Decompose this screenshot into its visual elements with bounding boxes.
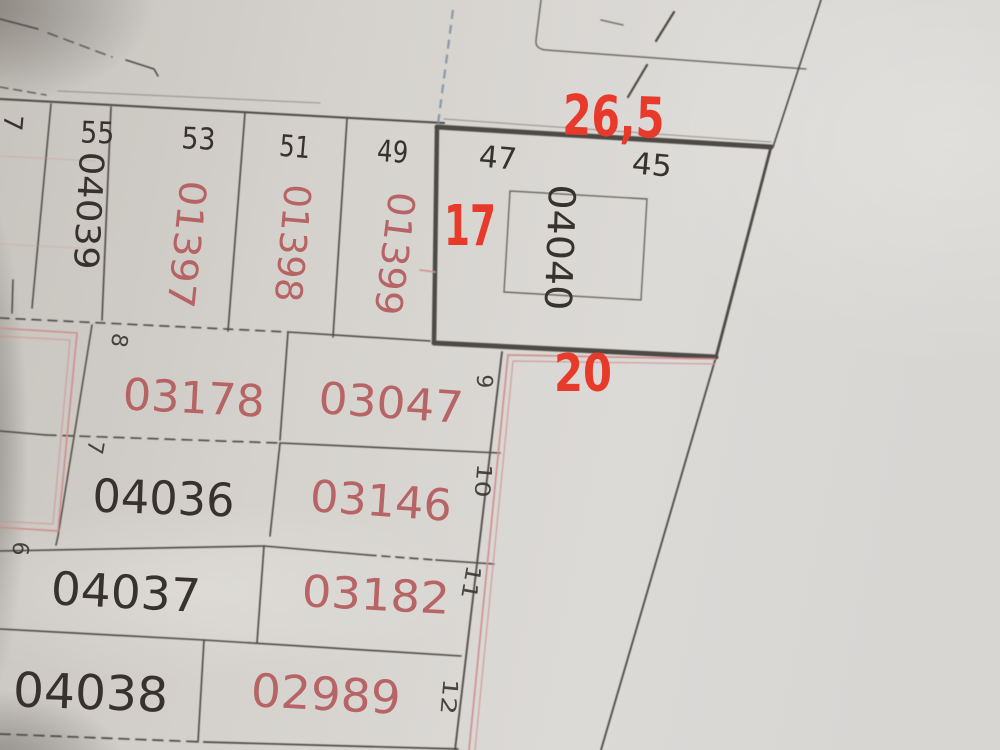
measurement-bottom-20: 20	[554, 344, 612, 404]
parcel-number-04038: 04038	[12, 662, 169, 723]
parcel-number-03047: 03047	[317, 373, 465, 434]
parcel-number-04040: 04040	[536, 184, 583, 311]
parcel-number-03182: 03182	[301, 566, 451, 625]
map-canvas: 7 55 53 51 49 47 45 04039 01397 01398 01…	[0, 0, 1000, 750]
lot-number-9: 9	[471, 374, 496, 389]
parcel-number-04037: 04037	[50, 561, 203, 623]
house-number-55: 55	[80, 115, 115, 151]
parcel-04040-left-edge	[434, 127, 437, 343]
house-number-47: 47	[477, 139, 518, 177]
parcel-number-04039: 04039	[65, 151, 111, 271]
parcel-number-03178: 03178	[122, 369, 266, 427]
parcel-number-03146: 03146	[308, 471, 453, 532]
house-number-49: 49	[376, 134, 409, 171]
house-number-51: 51	[278, 129, 312, 167]
measurement-top-26-5: 26,5	[562, 83, 666, 152]
parcel-number-04036: 04036	[92, 469, 236, 528]
house-number-57: 7	[0, 113, 28, 132]
house-number-45: 45	[630, 146, 673, 184]
left-stub-vertical	[12, 280, 13, 313]
house-number-53: 53	[181, 121, 217, 158]
parcel-number-02989: 02989	[250, 663, 403, 725]
cadastral-map: 7 55 53 51 49 47 45 04039 01397 01398 01…	[0, 0, 1000, 750]
lot-number-12: 12	[435, 678, 462, 716]
lot-number-10: 10	[470, 463, 497, 499]
measurement-left-17: 17	[444, 194, 496, 259]
lot-number-6: 6	[6, 541, 32, 557]
